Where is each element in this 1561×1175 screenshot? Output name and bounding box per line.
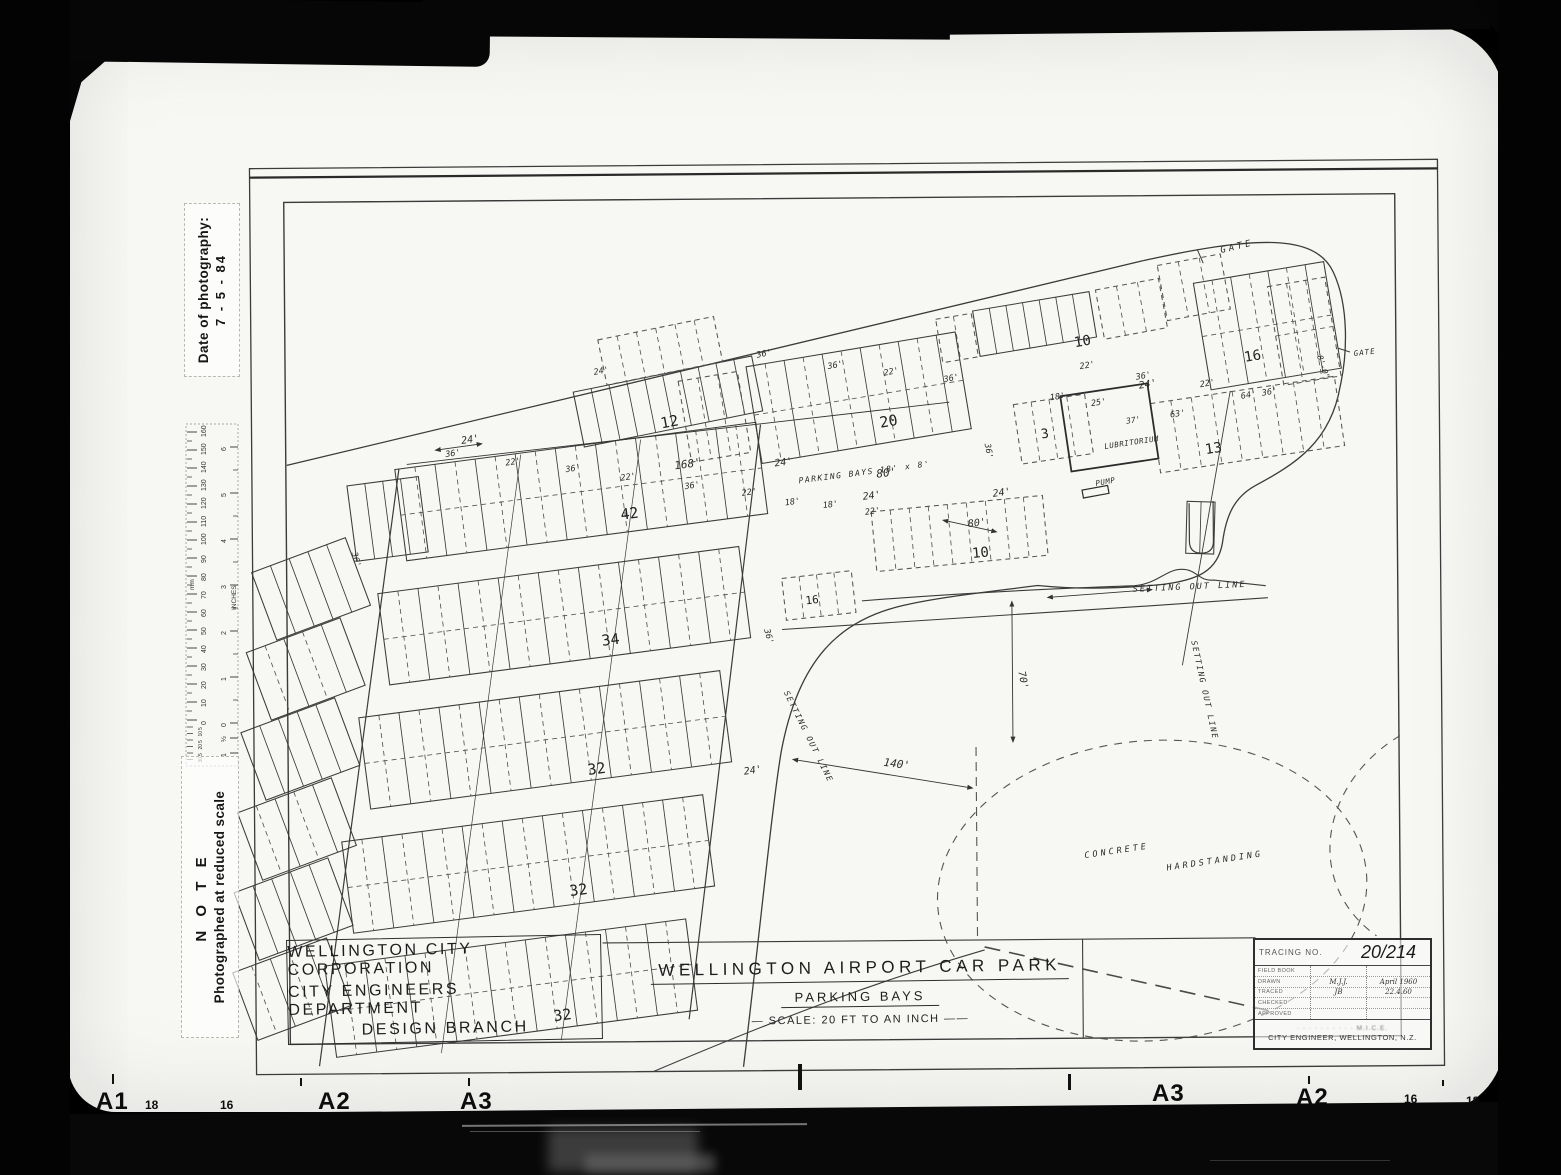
tracing-cell: 22.4.60 [1367, 988, 1430, 998]
ruler-tick-label: 40 [201, 645, 208, 653]
parking-bay-grid [342, 795, 715, 933]
ruler-tick-label: 60 [201, 609, 208, 617]
tracing-cell: TRACED [1255, 988, 1311, 998]
bay-count-label: 32 [568, 880, 588, 900]
bay-count-label: 16 [805, 593, 820, 607]
dimension-label: 36' [683, 480, 701, 492]
tracing-cell: FIELD BOOK [1255, 966, 1311, 976]
film-scratch [470, 1131, 700, 1132]
bay-count-label: 12 [659, 411, 680, 432]
note-text: Photographed at reduced scale [212, 791, 227, 1004]
engineer-office-line: CITY ENGINEER, WELLINGTON, N.Z. [1268, 1033, 1417, 1042]
bay-count-label: 42 [619, 504, 639, 524]
parking-bay-grid [1267, 277, 1341, 385]
reduced-scale-note: N O T E Photographed at reduced scale [181, 756, 239, 1038]
parking-bay-grid [598, 317, 723, 386]
bay-count-label: 16 [1243, 347, 1262, 366]
tracing-cell [1311, 966, 1367, 976]
ruler-tick-label: 6 [221, 447, 228, 451]
tracing-cell [1367, 966, 1430, 976]
tracing-row: TRACEDJB22.4.60 [1255, 988, 1430, 999]
plan-text-label: GATE [1220, 238, 1255, 256]
dimension-label: 22' [741, 487, 758, 499]
dimension-label: 24' [992, 487, 1011, 500]
dimension-label: 168' [674, 456, 702, 472]
parking-bay-grid [746, 332, 971, 463]
tracing-cell: DRAWN [1255, 977, 1311, 987]
parking-bay-grid [395, 422, 768, 560]
dimension-label: 70' [1015, 670, 1029, 690]
registration-tick [1308, 1076, 1310, 1084]
plan-text-label: PUMP [1095, 476, 1116, 488]
tracing-cell [1311, 1009, 1367, 1019]
tracing-cell: JB [1311, 988, 1367, 998]
parking-bay-grid [359, 671, 732, 809]
date-value: 7 - 5 - 84 [213, 254, 228, 326]
ruler-tick-label: 80 [201, 573, 208, 581]
tracing-number-block: TRACING NO. 20/214 FIELD BOOKDRAWNM.J.J.… [1253, 938, 1432, 1050]
lubritorium-building [1060, 383, 1158, 471]
ruler-tick-label: 10 [201, 699, 208, 707]
ruler-tick-label: 5 [198, 727, 204, 730]
microfilm-frame: 122010163134210163432323224'36'22'36'22'… [0, 0, 1561, 1175]
plan-text-label: HARDSTANDING [1165, 849, 1264, 873]
tracing-row: CHECKED [1255, 998, 1430, 1009]
plan-text-label: SETTING OUT LINE [1189, 640, 1220, 741]
ruler-tick-label: 100 [201, 533, 208, 545]
tracing-label: TRACING NO. [1255, 948, 1361, 957]
ruler-tick-label: 120 [201, 497, 208, 509]
dimension-label: 24' [862, 490, 881, 503]
ruler-tick-label: 3 [221, 585, 228, 589]
tracing-cell [1367, 998, 1430, 1008]
dimension-label: 22' [620, 472, 637, 484]
ruler-tick-label: mm [189, 579, 196, 590]
ruler-tick-label: 160 [201, 425, 208, 437]
ruler-tick-label: 4 [221, 539, 228, 543]
parking-bay-grid [246, 618, 365, 720]
ruler-tick-label: 70 [201, 591, 208, 599]
dimension-label: 36' [826, 359, 844, 372]
film-edge-top [470, 0, 950, 40]
film-edge-right [1498, 0, 1561, 1175]
parking-bay-grid [347, 477, 428, 562]
bay-count-label: 32 [586, 759, 606, 779]
ruler-tick-label: 130 [201, 479, 208, 491]
film-scratch [1210, 1160, 1390, 1161]
bay-count-label: 10 [971, 544, 989, 562]
dimension-label: 22' [883, 366, 900, 379]
film-smudge [585, 1154, 715, 1172]
ruler-tick-label: 20 [201, 681, 208, 689]
dimension-label: 24' [460, 433, 479, 447]
ruler-tick-label: ½ [220, 736, 228, 742]
ruler-tick-label: 0 [221, 723, 228, 727]
parking-bay-grid [1095, 278, 1167, 339]
dimension-label: 36' [942, 373, 960, 386]
plan-text-label: SETTING OUT LINE [782, 689, 835, 783]
date-of-photography-label: Date of photography: 7 - 5 - 84 [184, 203, 240, 377]
drawing-subtitle: PARKING BAYS [781, 987, 940, 1007]
film-frame-mark: 16 [220, 1098, 233, 1112]
parking-bay-grid [782, 571, 856, 621]
plan-text-label: LUBRITORIUM [1104, 434, 1160, 451]
reduction-scale-ruler: 1601501401301201101009080706050403020100… [186, 424, 238, 766]
dimension-label: 24' [1138, 378, 1158, 392]
dimension-label: 63' [1169, 408, 1186, 420]
tracing-row: FIELD BOOK [1255, 966, 1430, 977]
dimension-label: 8'-0" [1315, 354, 1331, 380]
tracing-row: DRAWNM.J.J.April 1960 [1255, 977, 1430, 988]
dimension-label: 80' [967, 517, 986, 530]
date-label: Date of photography: [196, 217, 211, 364]
tracing-rows: FIELD BOOKDRAWNM.J.J.April 1960TRACEDJB2… [1255, 966, 1430, 1020]
ruler-tick-label: 2 [221, 631, 228, 635]
tracing-cell [1311, 998, 1367, 1008]
dimension-label: 140' [883, 756, 911, 772]
tracing-cell: CHECKED [1255, 998, 1311, 1008]
ruler-tick-label: 140 [201, 461, 208, 473]
corp-line-3: DESIGN BRANCH [362, 1018, 529, 1039]
drawing-title-block: WELLINGTON AIRPORT CAR PARK PARKING BAYS… [639, 940, 1080, 1043]
plan-text-label: CONCRETE [1084, 842, 1150, 861]
tracing-row: APPROVED [1255, 1009, 1430, 1019]
drawing-scale: — SCALE: 20 FT TO AN INCH —— [752, 1012, 970, 1027]
bay-count-label: 13 [1204, 440, 1223, 458]
parking-bay-grid [936, 313, 979, 362]
registration-tick [112, 1074, 114, 1084]
dimension-label: 36' [348, 550, 362, 568]
parking-bay-grid [871, 495, 1048, 571]
ruler-tick-label: 30 [201, 663, 208, 671]
dimension-label: 37' [1124, 415, 1141, 426]
corp-line-2: CITY ENGINEERS DEPARTMENT [288, 977, 602, 1019]
dimension-label: 36' [755, 348, 773, 361]
dimension-label: 18' [822, 499, 839, 511]
dimension-label: 36' [982, 442, 995, 460]
ruler-tick-label: 5 [198, 740, 204, 743]
ruler-tick-label: 50 [201, 627, 208, 635]
dimension-label: 18' [784, 497, 801, 509]
ruler-tick-label: 0 [201, 721, 208, 725]
film-edge-left [0, 0, 70, 1175]
ruler-tick-label: 90 [201, 555, 208, 563]
bay-count-label: 20 [878, 411, 899, 432]
registration-tick [468, 1078, 470, 1086]
dimension-label: 22' [1079, 360, 1096, 372]
ruler-tick-label: 5 [221, 493, 228, 497]
dimension-label: 22' [864, 506, 881, 518]
plan-text-label: GATE [1353, 347, 1376, 358]
drawing-title: WELLINGTON AIRPORT CAR PARK [650, 955, 1069, 985]
tracing-cell: APPROVED [1255, 1009, 1311, 1019]
tracing-number: 20/214 [1361, 942, 1430, 963]
dimension-label: 22' [1199, 378, 1216, 390]
dimension-label: 24' [774, 456, 793, 469]
dimension-label: 24' [743, 764, 762, 778]
ruler-tick-label: 150 [201, 443, 208, 455]
corporation-title-block: WELLINGTON CITY CORPORATION CITY ENGINEE… [286, 934, 603, 1045]
bay-count-label: 3 [1040, 426, 1050, 442]
film-edge-bottom [0, 1101, 1561, 1175]
engineer-name-line: · · · · · · · · · · M.I.C.E. [1297, 1025, 1388, 1032]
dimension-label: 25' [1090, 397, 1107, 409]
film-frame-mark: 18 [145, 1098, 158, 1112]
bay-count-label: 34 [600, 630, 620, 650]
ruler-tick-label: 110 [201, 516, 208, 527]
tracing-cell: M.J.J. [1311, 977, 1367, 987]
ruler-tick-label: INCHES [231, 585, 238, 610]
film-edge-top [930, 0, 1490, 35]
registration-tick [1442, 1080, 1444, 1086]
registration-tick [1068, 1074, 1071, 1090]
parking-bay-grid [1013, 394, 1093, 464]
ruler-tick-label: 20 [198, 744, 204, 750]
ruler-tick-label: 10 [198, 731, 204, 737]
tracing-cell: April 1960 [1367, 977, 1430, 987]
dimension-label: 36' [761, 627, 775, 645]
parking-bay-grid [378, 546, 751, 684]
bay-count-label: 10 [1073, 333, 1092, 352]
dimension-label: 36' [1260, 386, 1278, 399]
dimension-label: 24' [593, 365, 610, 378]
note-title: N O T E [193, 852, 210, 941]
registration-tick [798, 1064, 802, 1090]
tracing-cell [1367, 1009, 1430, 1019]
plan-text-label: PARKING BAYS 18' x 8' [798, 459, 931, 485]
parking-bay-grid [241, 698, 360, 800]
parking-bay-grid [678, 371, 751, 462]
film-frame-mark: A1 [96, 1088, 129, 1116]
dimension-label: 18' [1049, 391, 1066, 403]
registration-tick [300, 1078, 302, 1086]
ruler-tick-label: 1 [221, 677, 228, 681]
corp-line-1: WELLINGTON CITY CORPORATION [287, 938, 601, 980]
parking-bay-grid [1193, 262, 1341, 390]
